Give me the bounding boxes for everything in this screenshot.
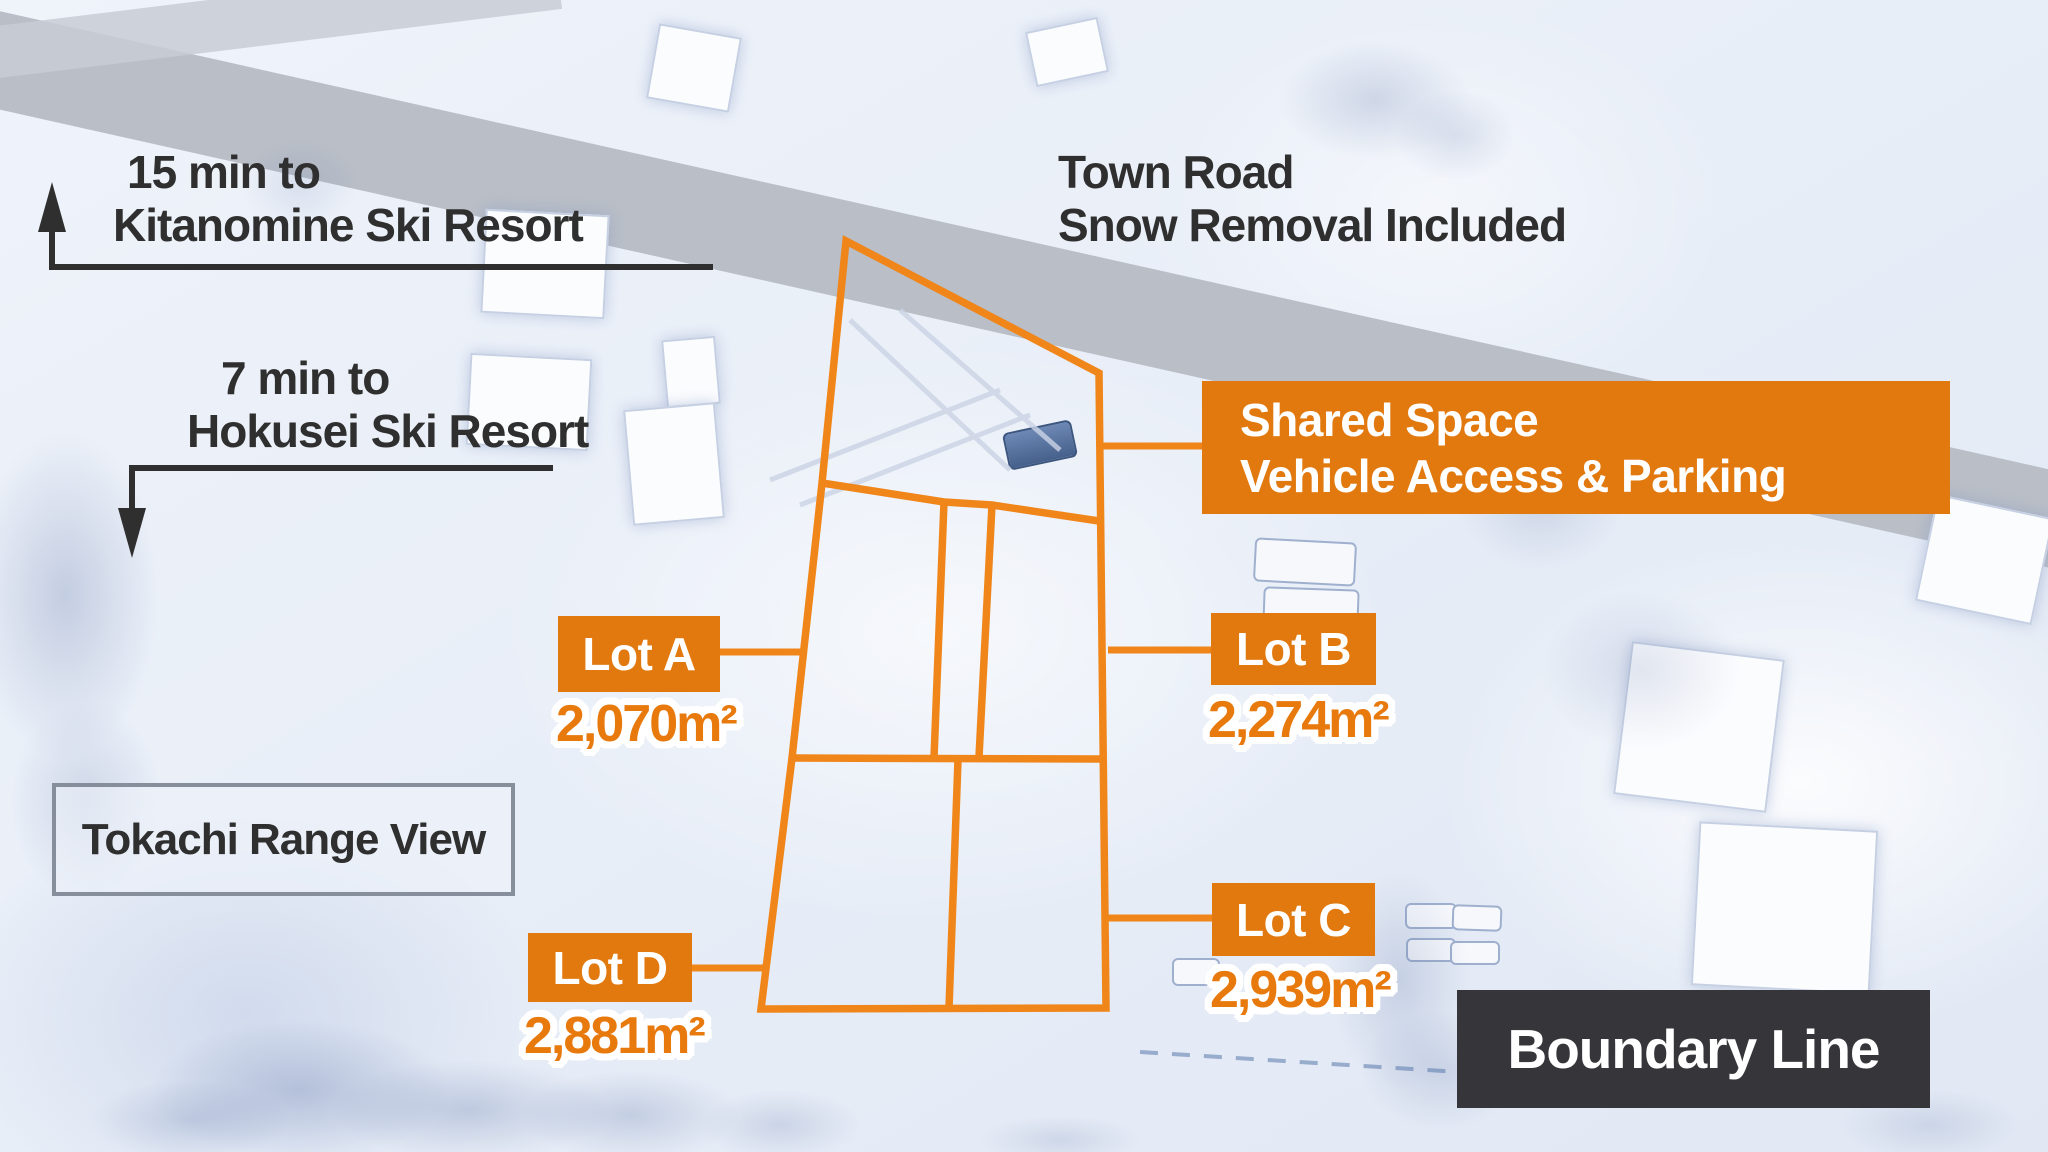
note-kitanomine-line1: 15 min to — [113, 146, 583, 199]
aerial-lot-map: 15 min to Kitanomine Ski Resort 7 min to… — [0, 0, 2048, 1152]
lot-divider-vertical-1 — [934, 502, 944, 758]
lot-divider-vertical-3 — [949, 760, 958, 1008]
note-kitanomine-line2: Kitanomine Ski Resort — [113, 199, 583, 252]
note-kitanomine: 15 min to Kitanomine Ski Resort — [113, 146, 583, 252]
lot-divider-upper — [822, 483, 1099, 521]
lot-c-label-text: Lot C — [1236, 893, 1351, 947]
lot-b-area: 2,274m² — [1208, 690, 1388, 750]
lot-boundary-lines — [761, 241, 1106, 1009]
tire-tracks — [770, 310, 1060, 505]
lot-d-area: 2,881m² — [524, 1006, 704, 1066]
arrow-down-icon — [118, 508, 146, 558]
lot-divider-vertical-2 — [979, 505, 992, 757]
lot-d-label-text: Lot D — [552, 941, 667, 995]
tokachi-range-view-text: Tokachi Range View — [82, 815, 485, 865]
lot-a-label-text: Lot A — [582, 627, 695, 681]
arrow-line-hokusei — [132, 468, 553, 512]
lot-outer-boundary — [761, 241, 1106, 1009]
arrow-up-icon — [38, 182, 66, 232]
shared-space-line2: Vehicle Access & Parking — [1240, 448, 1950, 504]
lot-c-area: 2,939m² — [1210, 960, 1390, 1020]
lot-d-label: Lot D — [528, 933, 692, 1002]
note-hokusei-line2: Hokusei Ski Resort — [187, 405, 588, 458]
tokachi-range-view-box: Tokachi Range View — [52, 783, 515, 896]
lot-b-label-text: Lot B — [1236, 622, 1351, 676]
note-hokusei: 7 min to Hokusei Ski Resort — [187, 352, 588, 458]
boundary-line-legend-text: Boundary Line — [1507, 1017, 1879, 1081]
note-town-road-line2: Snow Removal Included — [1058, 199, 1566, 252]
shared-space-line1: Shared Space — [1240, 392, 1950, 448]
lot-a-area: 2,070m² — [556, 694, 736, 754]
boundary-line-legend: Boundary Line — [1457, 990, 1930, 1108]
lot-c-label: Lot C — [1212, 883, 1375, 956]
lot-a-label: Lot A — [558, 616, 720, 692]
note-town-road: Town Road Snow Removal Included — [1058, 146, 1566, 252]
shared-space-banner: Shared Space Vehicle Access & Parking — [1202, 381, 1950, 514]
note-hokusei-line1: 7 min to — [187, 352, 588, 405]
lot-divider-middle — [792, 758, 1100, 759]
lot-b-label: Lot B — [1211, 613, 1376, 685]
note-town-road-line1: Town Road — [1058, 146, 1566, 199]
